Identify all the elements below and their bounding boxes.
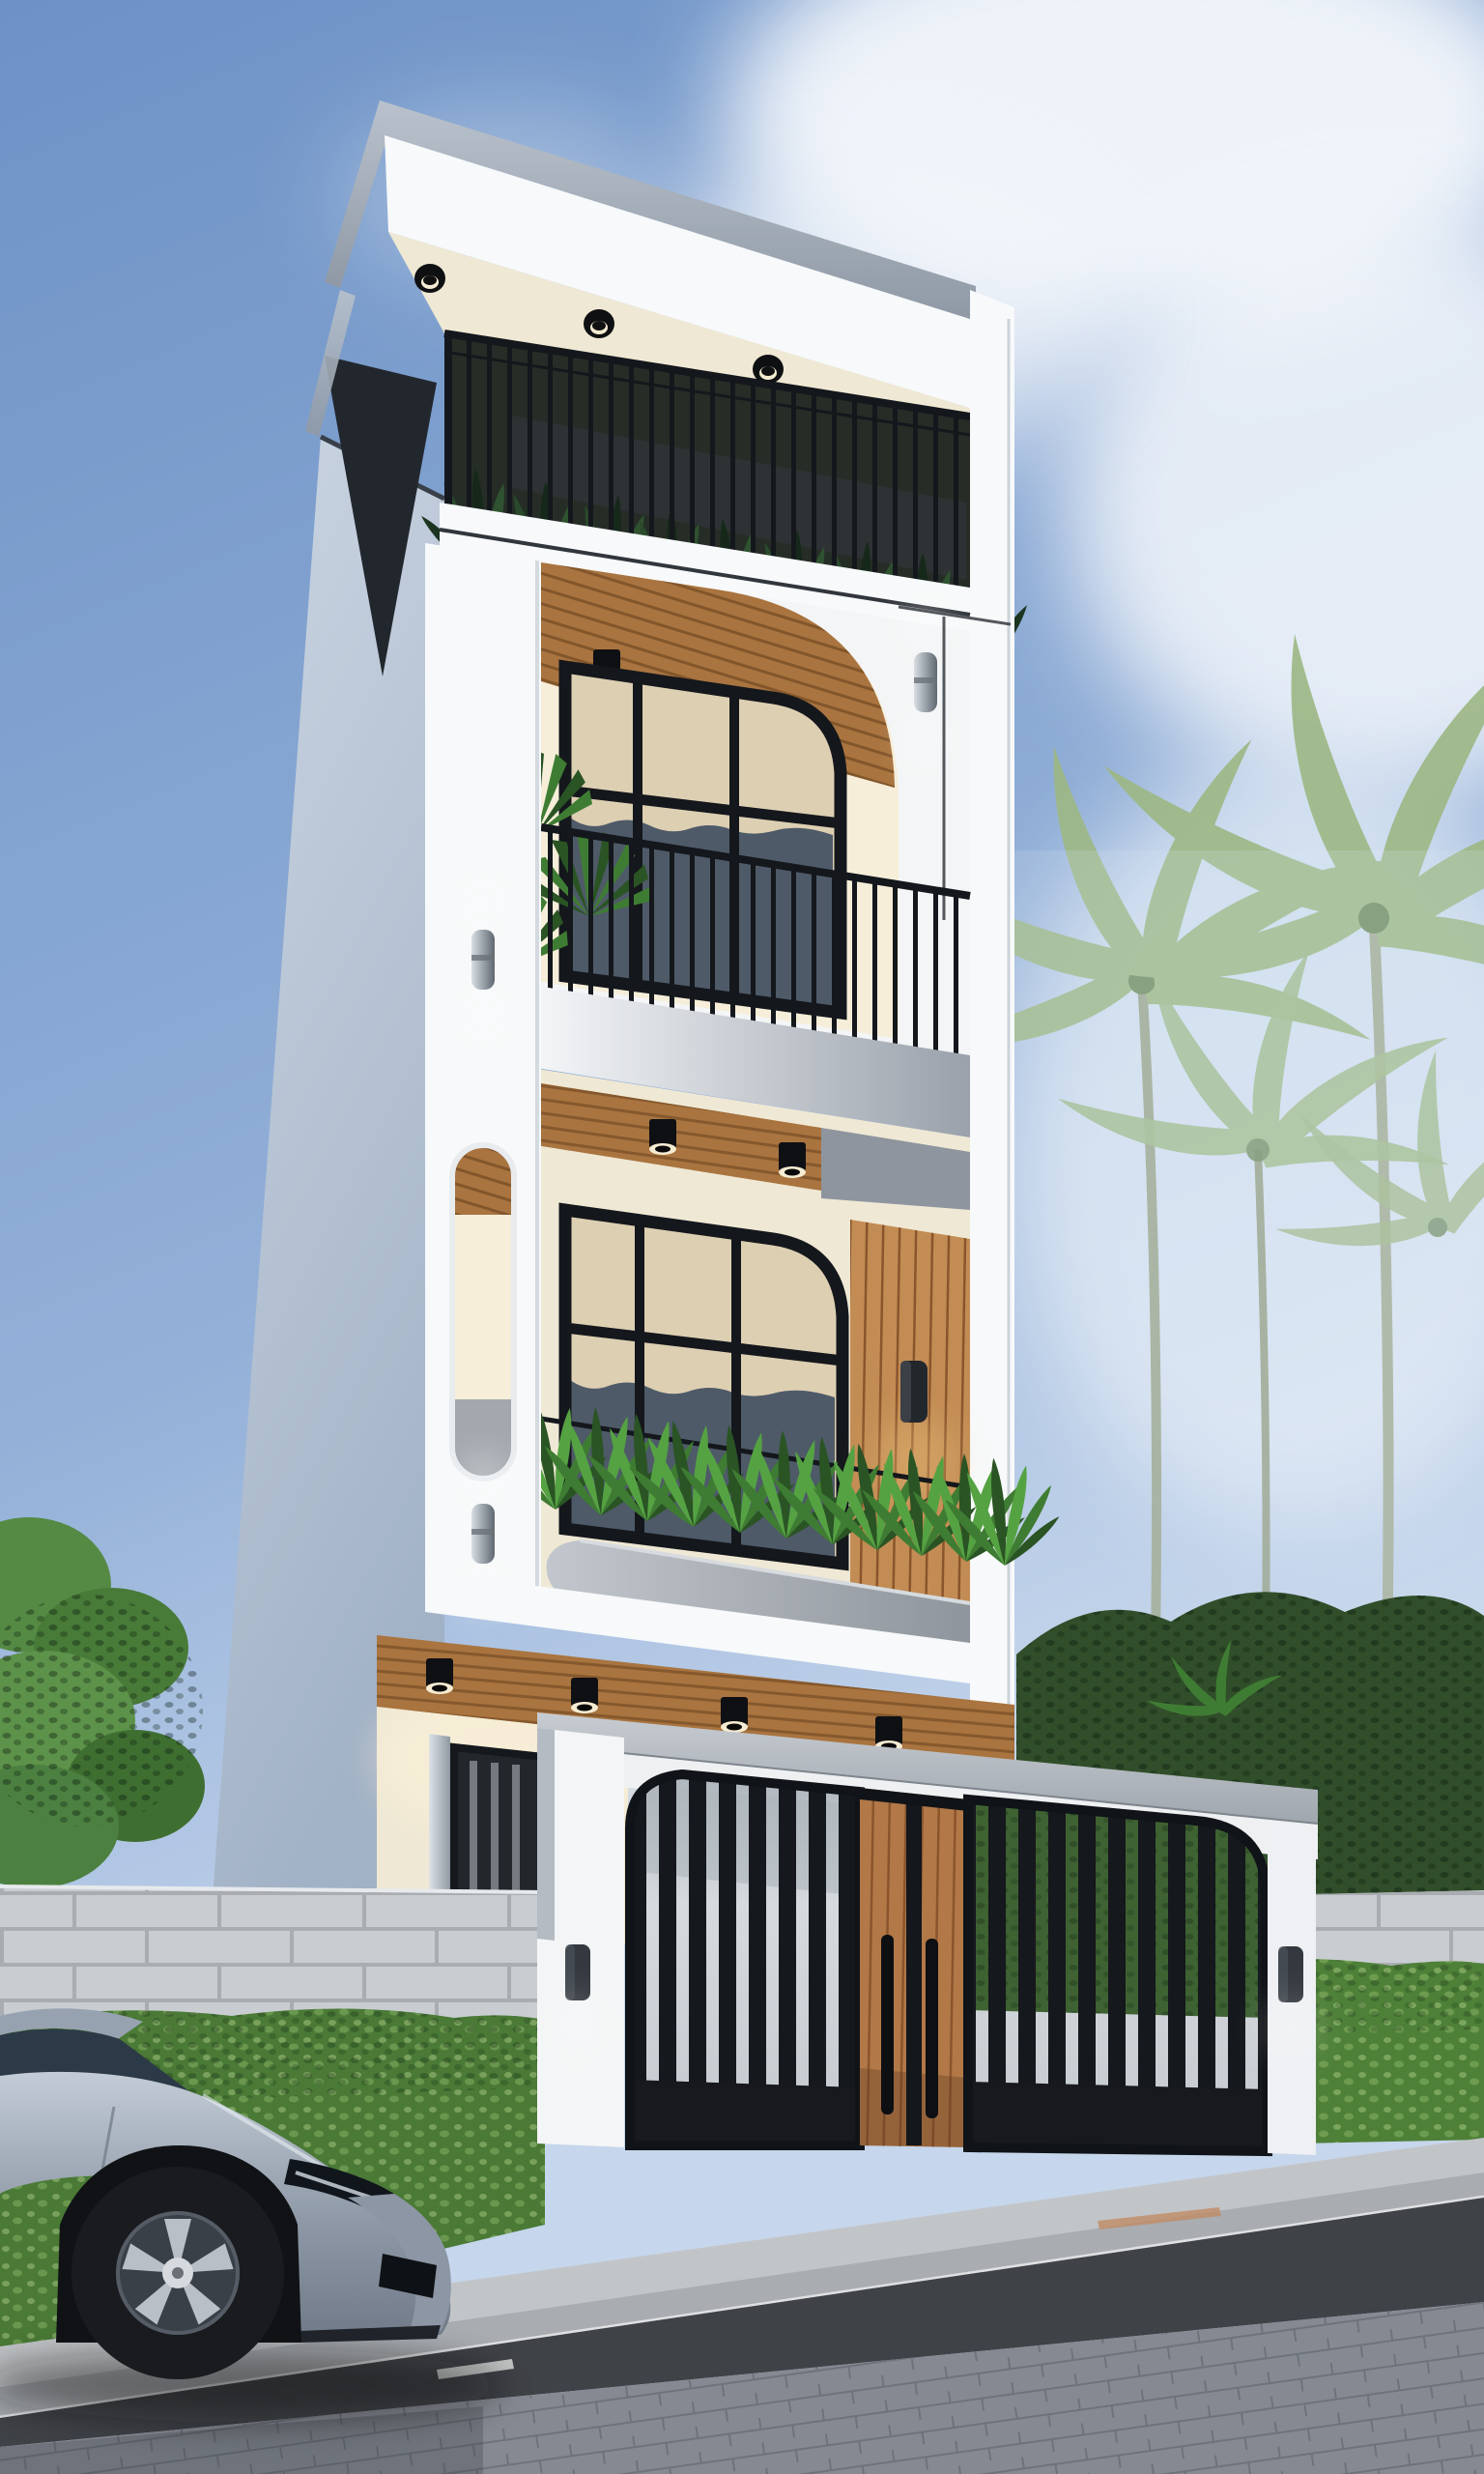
car-wheel [71, 2167, 284, 2379]
door-handle [881, 1935, 894, 2114]
gate-right-slat-panel [966, 1794, 1270, 2155]
balcony-soffit-downlight [779, 1142, 806, 1178]
gate-left-slat-panel [626, 1769, 864, 2151]
porch-downlight [426, 1658, 453, 1694]
roof-soffit-downlight [584, 309, 614, 338]
building [211, 101, 1063, 1944]
gate-pillar-right [1266, 1821, 1316, 2155]
pier-capsule-niche [452, 1145, 514, 1479]
gate-wood-door [860, 1788, 968, 2147]
porch-downlight [571, 1678, 598, 1713]
gate-pillar-left [537, 1728, 624, 2147]
roof-soffit-downlight [414, 264, 445, 293]
door-handle [926, 1939, 938, 2118]
porch-downlight [721, 1697, 748, 1733]
pier [425, 543, 541, 1608]
balcony-soffit-downlight [649, 1119, 676, 1155]
architectural-render [0, 0, 1484, 2474]
wood-slat-wall-panel [850, 1220, 970, 1645]
